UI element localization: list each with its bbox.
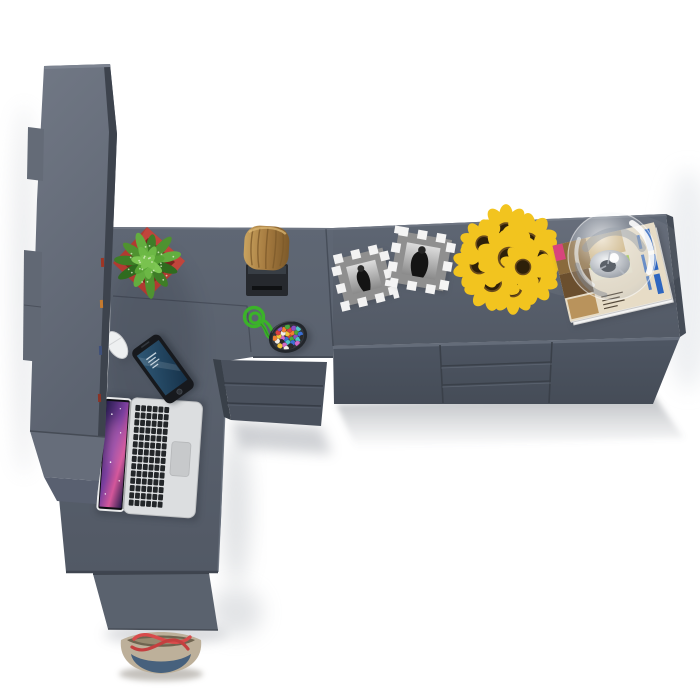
stand-slot: [252, 286, 282, 290]
return-floor-shadow: [222, 435, 250, 585]
laptop-trackpad: [170, 441, 191, 476]
tote-bag: [119, 632, 203, 681]
funnel-specular: [609, 253, 619, 263]
laptop: [95, 394, 207, 523]
wooden-log-stool: [243, 225, 290, 296]
front-panel-seam: [93, 573, 209, 574]
pedestal-front: [221, 360, 327, 426]
hutch-bookcase: [23, 64, 117, 504]
render-canvas: [0, 0, 700, 700]
log: [243, 225, 290, 271]
picture-frame-2: [390, 231, 456, 294]
hutch-left-tab-1: [27, 127, 44, 181]
desk-front-panel: [93, 573, 218, 630]
corner-drawer-unit: [213, 359, 327, 426]
hutch-lower-slab: [30, 431, 105, 481]
front-panel-bottom: [108, 629, 218, 630]
glass-dome-lamp: [568, 212, 656, 300]
scene-topdown-office-desk: [0, 0, 700, 700]
hutch-lower-step: [44, 477, 99, 504]
pedestal-floor-shadow: [231, 421, 332, 454]
